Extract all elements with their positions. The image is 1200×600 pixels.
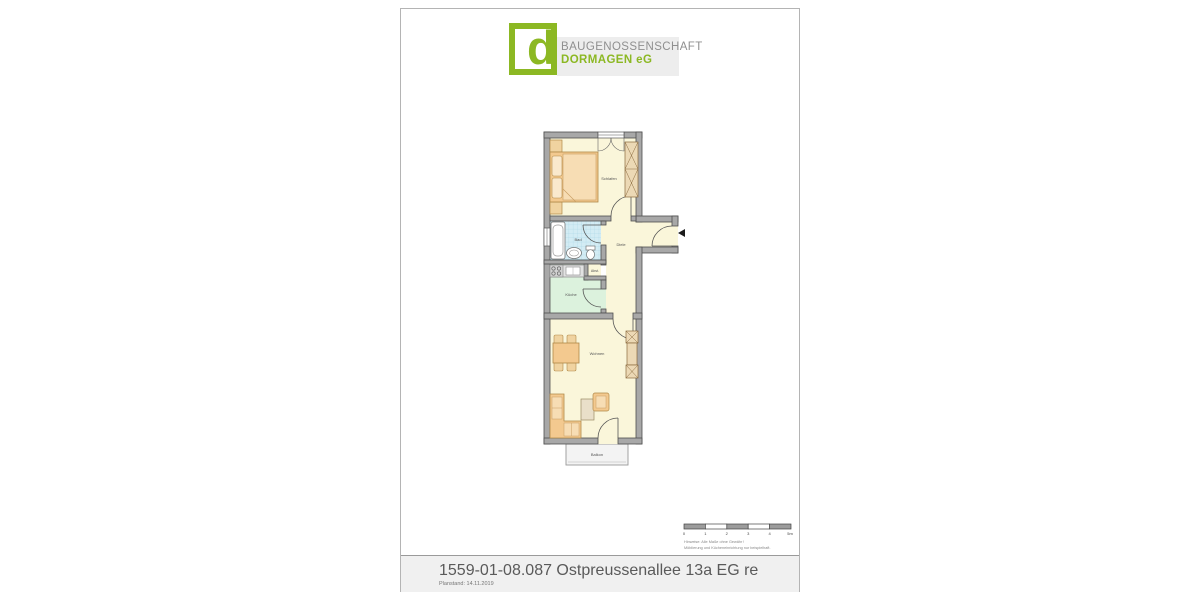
sink bbox=[567, 248, 582, 259]
floorplan-drawing: Schlafen Bad Diele Abst. Küche Wohnen Ba… bbox=[401, 9, 799, 591]
room-label-wohnen: Wohnen bbox=[590, 351, 605, 356]
bath-window bbox=[544, 228, 550, 246]
kitchen-sink bbox=[566, 267, 580, 275]
title-block: 1559-01-08.087 Ostpreussenallee 13a EG r… bbox=[401, 555, 799, 592]
kitchen-counter bbox=[550, 265, 584, 277]
note-line2: Möblierung und Kücheneinrichtung nur bei… bbox=[684, 546, 771, 550]
svg-text:0: 0 bbox=[683, 531, 686, 536]
nightstand bbox=[550, 202, 562, 214]
entrance-arrow-icon bbox=[678, 229, 685, 237]
room-label-schlafen: Schlafen bbox=[601, 176, 617, 181]
scale-notes: Hinweise: Alle Maße ohne Gewähr ! Möblie… bbox=[684, 540, 771, 550]
svg-text:3: 3 bbox=[747, 531, 750, 536]
plan-date: Planstand: 14.11.2019 bbox=[439, 581, 494, 587]
plan-title: 1559-01-08.087 Ostpreussenallee 13a EG r… bbox=[439, 562, 758, 580]
plan-sheet-page: d BAUGENOSSENSCHAFT DORMAGEN eG bbox=[400, 8, 800, 592]
wardrobe bbox=[626, 331, 638, 378]
room-label-diele: Diele bbox=[616, 242, 626, 247]
wardrobe bbox=[625, 142, 638, 197]
screenshot-canvas: d BAUGENOSSENSCHAFT DORMAGEN eG bbox=[0, 0, 1200, 600]
room-label-abst: Abst. bbox=[591, 269, 599, 273]
nightstand bbox=[550, 140, 562, 152]
room-label-balkon: Balkon bbox=[591, 452, 603, 457]
coffee-table bbox=[581, 399, 594, 420]
toilet bbox=[586, 246, 595, 259]
dining-table bbox=[553, 343, 579, 363]
armchair bbox=[593, 393, 609, 411]
bathtub bbox=[551, 222, 565, 259]
stove bbox=[550, 265, 563, 277]
svg-text:5m: 5m bbox=[787, 531, 793, 536]
room-label-kueche: Küche bbox=[565, 292, 577, 297]
svg-text:1: 1 bbox=[704, 531, 707, 536]
scale-bar: 0 1 2 3 4 5m Hinweise: Alle Maße ohne Ge… bbox=[683, 524, 794, 550]
svg-text:4: 4 bbox=[768, 531, 771, 536]
room-label-bad: Bad bbox=[574, 237, 581, 242]
svg-text:2: 2 bbox=[726, 531, 729, 536]
scale-ticks: 0 1 2 3 4 5m bbox=[683, 531, 794, 536]
note-line1: Hinweise: Alle Maße ohne Gewähr ! bbox=[684, 540, 744, 544]
bed bbox=[550, 152, 598, 202]
